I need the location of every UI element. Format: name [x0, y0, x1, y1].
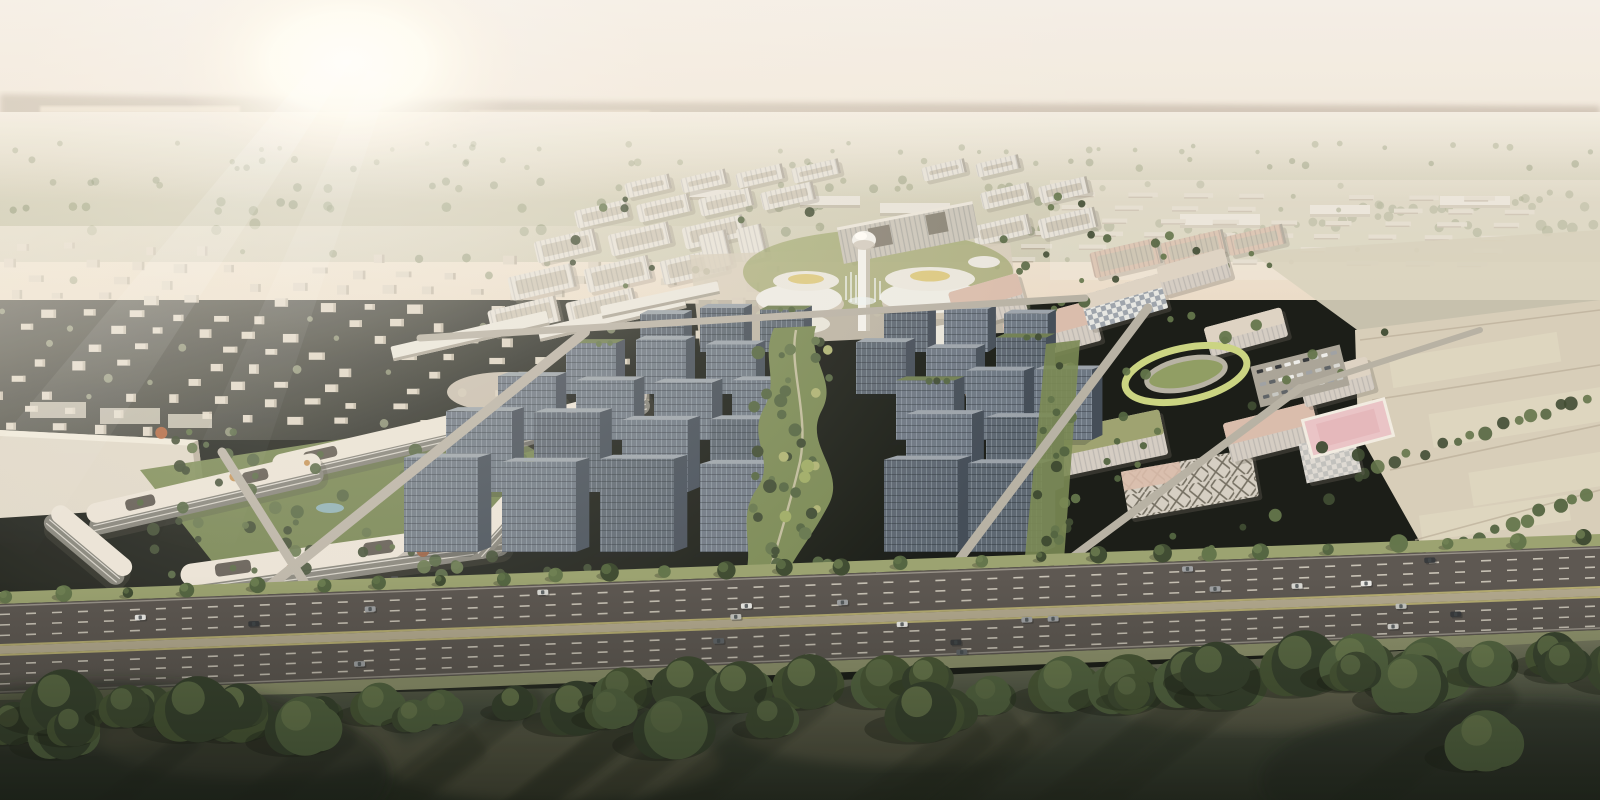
bottom-vignette: [0, 0, 1600, 800]
aerial-cityscape-render: [0, 0, 1600, 800]
aerial-render-viewport: [0, 0, 1600, 800]
